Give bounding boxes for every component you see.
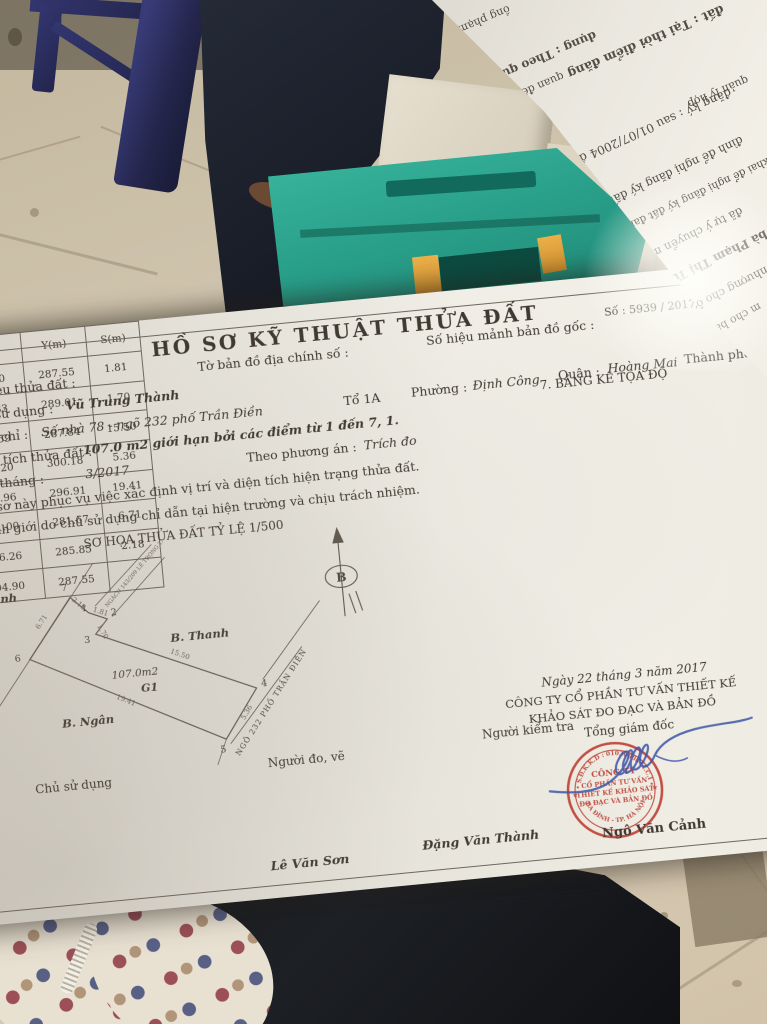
extension-line — [0, 563, 107, 716]
floor-stain — [30, 208, 39, 217]
field-ward-label: Phường : — [410, 379, 467, 399]
plot-group-label: G1 — [140, 680, 158, 695]
neighbor-bottom: B. Ngân — [60, 712, 114, 731]
coord-table-title: 7. BẢNG KÊ TỌA ĐỘ — [485, 361, 721, 398]
tile-grout-line — [0, 136, 81, 163]
neighbor-left: Ô. Minh — [0, 591, 18, 610]
photo-of-land-survey-document: HỒ SƠ KỸ THUẬT THỬA ĐẤT Số : 5939 / 2017… — [0, 0, 767, 1024]
tile-grout-line — [0, 231, 158, 275]
vertex-label: 6 — [14, 653, 21, 665]
stool-front-leg — [113, 0, 207, 194]
dim-label: 19.41 — [115, 693, 137, 708]
alley-edge — [90, 544, 157, 606]
overlay-text-fragment: ồng phạm vi — [444, 3, 512, 42]
dim-label: 5.36 — [239, 703, 254, 721]
vertex-label: 4 — [261, 678, 268, 690]
road-label: NGÕ 232 PHỐ TRẦN ĐIỀN — [233, 646, 309, 757]
land-survey-document-paper: HỒ SƠ KỸ THUẬT THỬA ĐẤT Số : 5939 / 2017… — [0, 256, 767, 929]
floor-stain — [8, 28, 22, 46]
svg-text:★: ★ — [652, 784, 659, 792]
vertex-label: 5 — [220, 744, 227, 756]
field-method-value: Trích đo — [363, 433, 417, 453]
neighbor-right: B. Thanh — [169, 625, 230, 645]
stool-left-leg — [32, 5, 63, 93]
dim-label: 6.71 — [34, 613, 49, 630]
sig-name-checker: Đặng Văn Thành — [422, 827, 540, 853]
vertex-label: 2 — [110, 607, 117, 619]
plot-area-label: 107.0m2 — [111, 665, 159, 681]
field-to: Tổ 1A — [343, 390, 381, 408]
vertex-label: 3 — [84, 635, 91, 647]
vertex-label: 7 — [61, 583, 68, 595]
sig-name-surveyor: Lê Văn Sơn — [270, 851, 350, 873]
field-method-label: Theo phương án : — [246, 439, 358, 465]
north-symbol: B — [336, 570, 347, 585]
floor-stain — [732, 980, 742, 987]
